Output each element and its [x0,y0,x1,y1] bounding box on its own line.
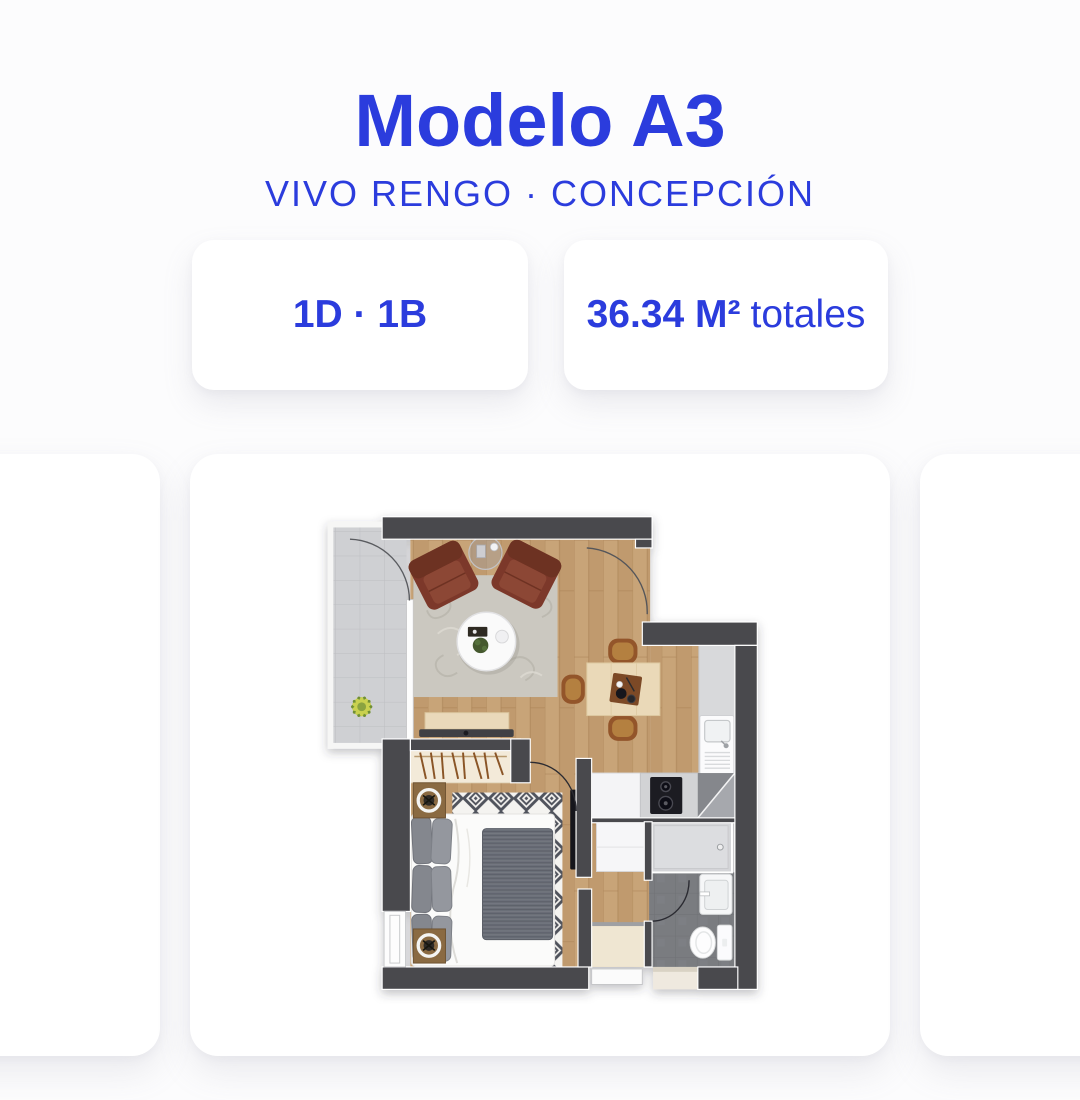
area-value: 36.34 M² [587,293,741,337]
side-table [469,536,502,569]
bathroom [649,821,735,966]
shower [650,821,732,872]
page-root: { "colors": { "accent": "#2b3cdd", "page… [0,0,1080,1100]
stats-row: 1D · 1B 36.34 M² totales [0,240,1080,390]
carousel-card-next[interactable] [920,454,1080,1056]
rooms-value: 1D · 1B [293,293,427,337]
closet [410,750,510,782]
stat-card-area: 36.34 M² totales [564,240,888,390]
serving-tray [609,672,642,705]
project-subtitle: VIVO RENGO · CONCEPCIÓN [0,176,1080,212]
entry-nook [592,926,645,967]
carousel-card-previous[interactable] [0,454,160,1056]
area-suffix: totales [751,293,866,337]
bathroom-sink [700,874,732,914]
console-table [419,712,514,736]
corner-cabinet [698,773,735,818]
entry-door [592,968,643,984]
page-title: Modelo A3 [0,84,1080,158]
floor-plan-carousel [0,454,1080,1056]
balcony [328,521,414,748]
window [384,911,405,967]
stat-card-rooms: 1D · 1B [192,240,528,390]
toilet [690,925,732,960]
cooktop [650,776,682,813]
floor-plan-image [311,507,769,1004]
floor-plan-drawing [328,516,758,989]
kitchen-sink [700,715,734,773]
bedroom [411,782,577,966]
header: Modelo A3 VIVO RENGO · CONCEPCIÓN [0,0,1080,212]
nightstand [413,928,445,962]
nightstand [413,782,445,817]
carousel-card-current[interactable] [190,454,890,1056]
